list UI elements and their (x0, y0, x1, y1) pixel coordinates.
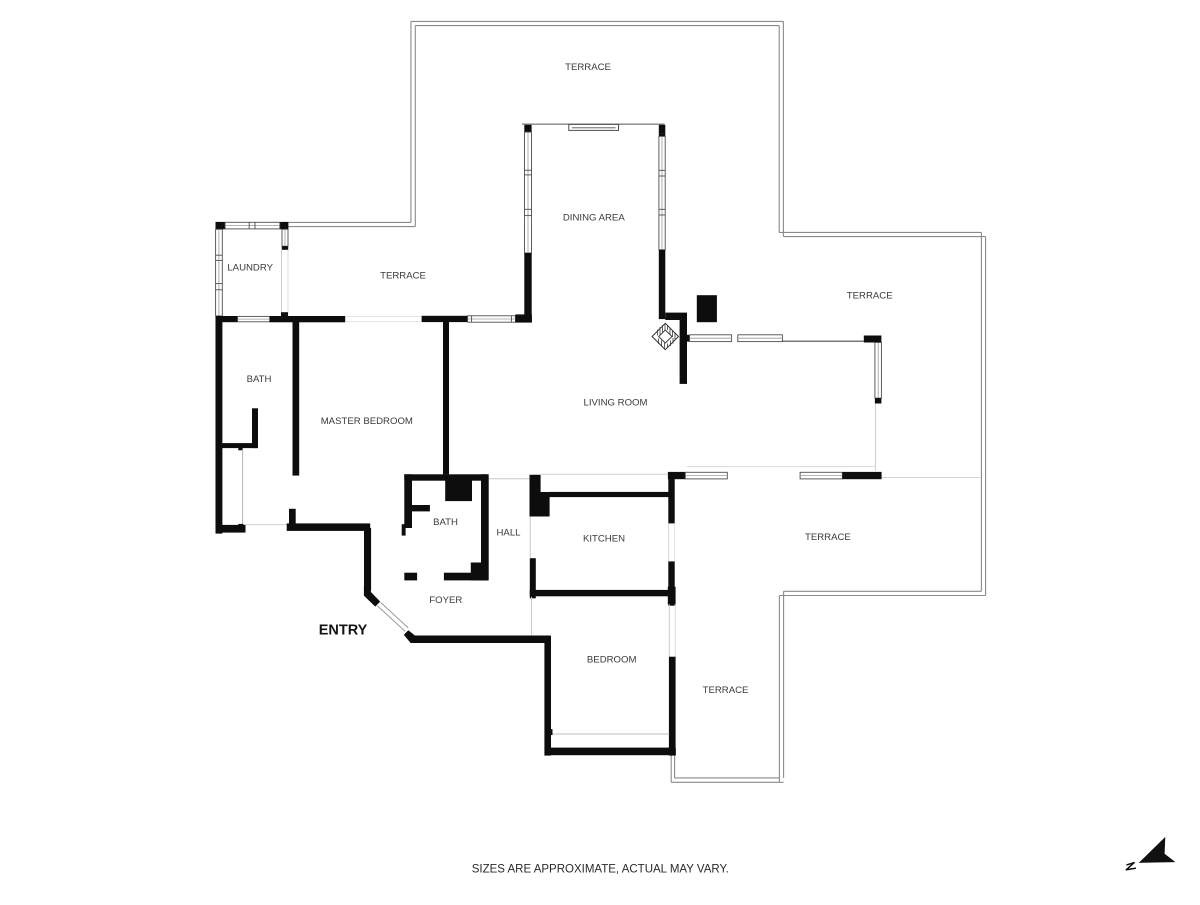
svg-text:DINING AREA: DINING AREA (563, 213, 625, 224)
svg-text:TERRACE: TERRACE (847, 291, 893, 302)
svg-text:ENTRY: ENTRY (319, 622, 368, 638)
svg-text:LIVING ROOM: LIVING ROOM (584, 398, 648, 409)
svg-text:BATH: BATH (247, 374, 272, 385)
svg-text:BATH: BATH (433, 517, 458, 528)
svg-text:KITCHEN: KITCHEN (583, 534, 625, 545)
svg-text:TERRACE: TERRACE (703, 685, 749, 696)
svg-text:HALL: HALL (497, 527, 522, 538)
svg-text:MASTER BEDROOM: MASTER BEDROOM (321, 416, 413, 427)
svg-text:SIZES ARE APPROXIMATE, ACTUAL: SIZES ARE APPROXIMATE, ACTUAL MAY VARY. (472, 864, 729, 876)
svg-text:FOYER: FOYER (429, 595, 462, 606)
svg-text:TERRACE: TERRACE (565, 62, 611, 73)
svg-text:TERRACE: TERRACE (380, 271, 426, 282)
svg-text:BEDROOM: BEDROOM (587, 654, 637, 665)
svg-text:TERRACE: TERRACE (805, 532, 851, 543)
svg-text:LAUNDRY: LAUNDRY (227, 262, 273, 273)
